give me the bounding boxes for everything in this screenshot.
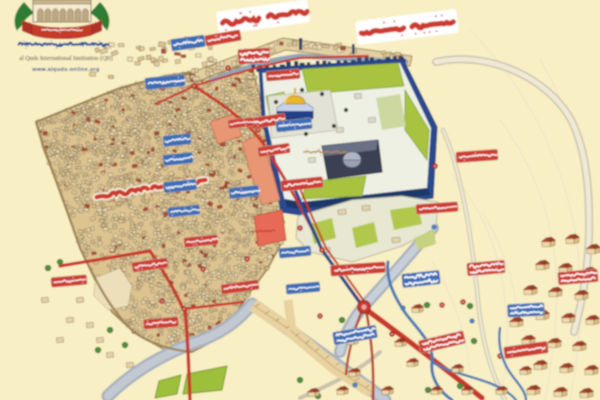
svg-text:al Quds International Institut: al Quds International Institution (QII): [19, 55, 112, 62]
svg-text:www.alquds-online.org: www.alquds-online.org: [31, 67, 100, 73]
